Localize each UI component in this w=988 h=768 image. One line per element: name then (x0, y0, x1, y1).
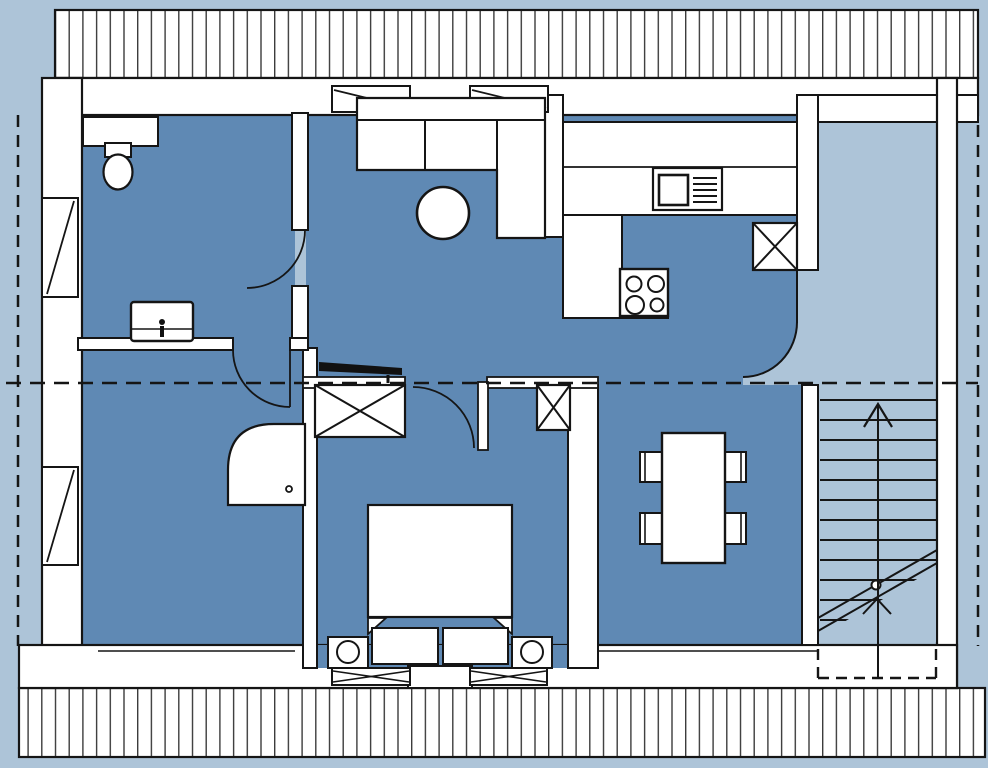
stove-burner-1 (627, 277, 642, 292)
nightstand-right-lamp (521, 641, 543, 663)
shower-drain (286, 486, 292, 492)
wall-bathroom-south-stub (290, 338, 308, 350)
sink-basin (659, 175, 688, 205)
wall-living-kitchen (545, 95, 563, 237)
bed-pillow-right (443, 628, 508, 664)
toilet-cistern-shelf (83, 117, 158, 146)
wall-bedroom-right (568, 385, 598, 668)
wall-bathroom-living (292, 113, 308, 230)
stove-burner-3 (626, 296, 644, 314)
shower (228, 424, 305, 505)
bed-pillow-left (372, 628, 438, 664)
stair-break-node (872, 581, 881, 590)
washbasin-tap-dot (159, 319, 165, 325)
floor-plan-shapes (0, 0, 988, 768)
stove-burner-4 (651, 299, 664, 312)
eaves-hatch-top (55, 10, 978, 78)
dining-table (662, 433, 725, 563)
floor-plan (0, 0, 988, 768)
wall-kitchen-right (797, 95, 818, 270)
coffee-table (417, 187, 469, 239)
eaves-hatch-bottom (19, 688, 985, 757)
door-leaf-bedroom (478, 382, 488, 450)
nightstand-left-lamp (337, 641, 359, 663)
bed-duvet (368, 505, 512, 617)
toilet-bowl (104, 155, 133, 190)
stove-burner-2 (648, 276, 664, 292)
wall-stair-left (802, 385, 818, 645)
floor-plan-canvas (0, 0, 988, 768)
wall-pier-bottom-windows (408, 666, 472, 688)
